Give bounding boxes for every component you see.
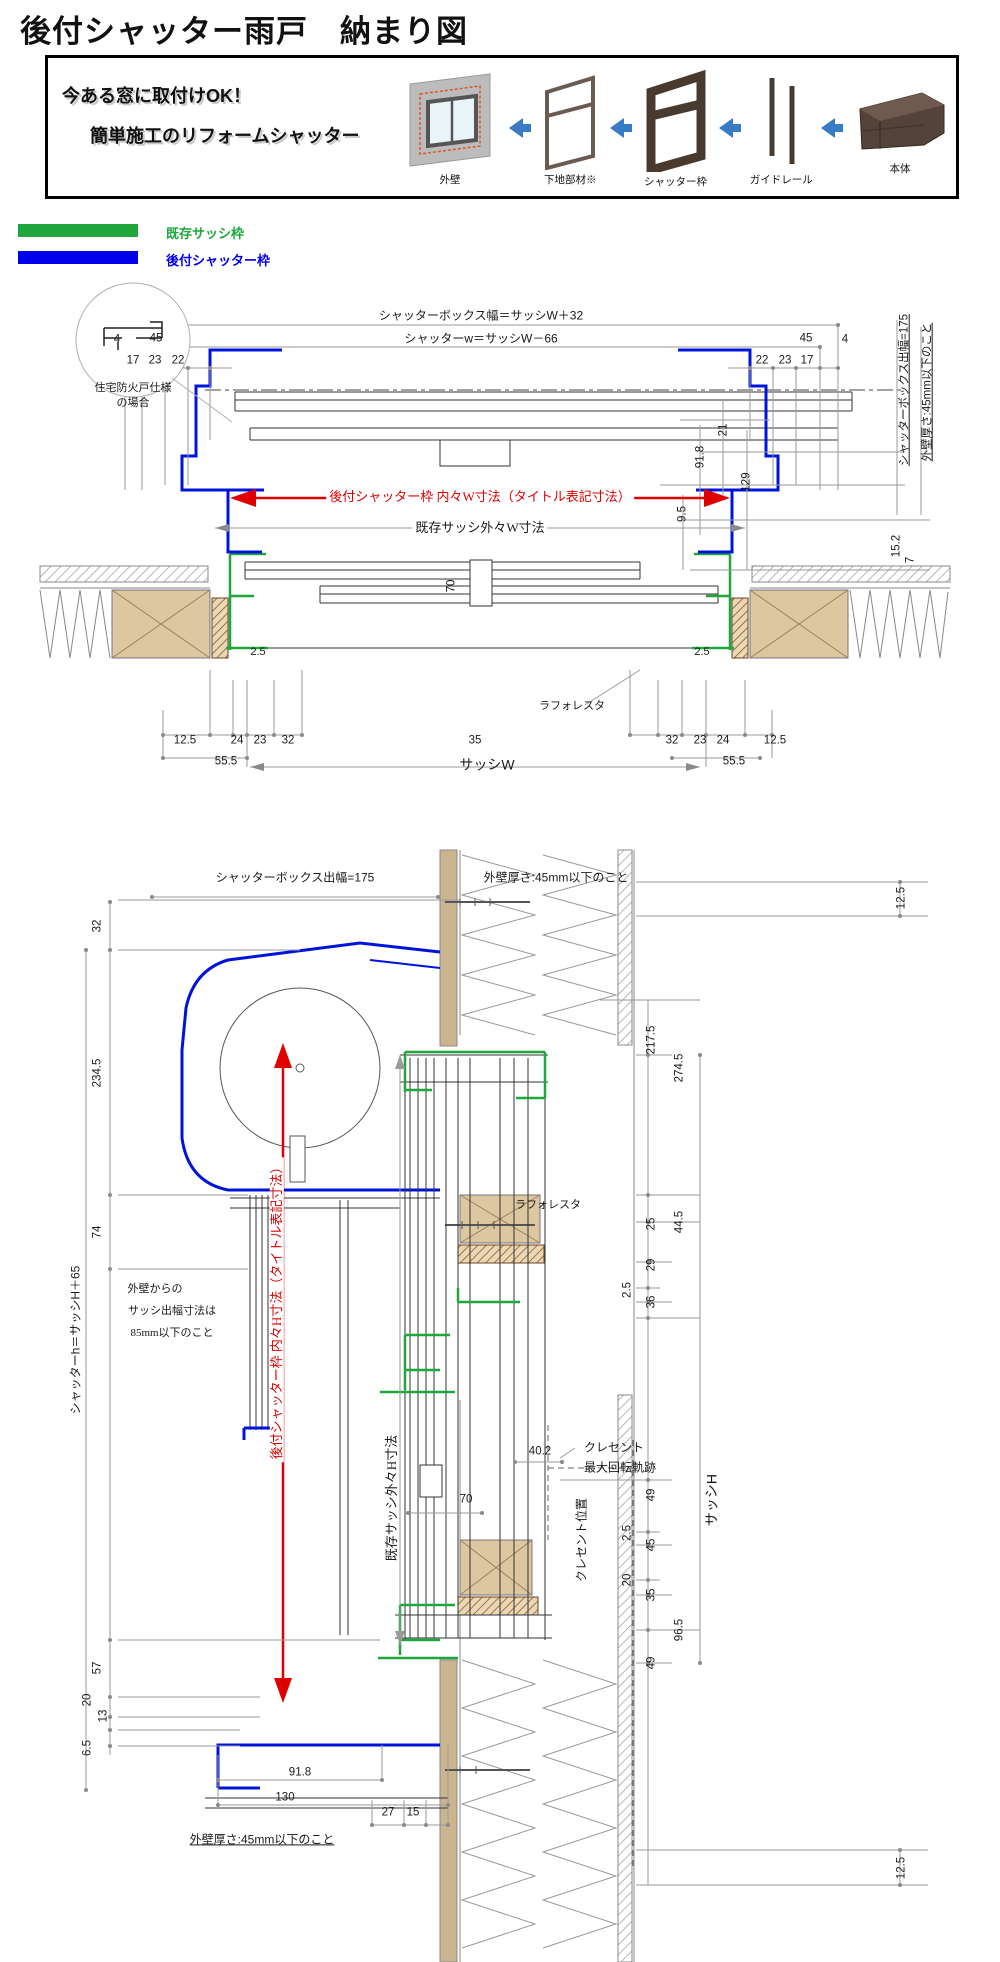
dim-label: 22	[756, 355, 769, 368]
dim-label: 外壁厚さ:45mm以下のこと	[190, 1833, 335, 1846]
dim-label: 45	[800, 333, 813, 346]
shutter-frame-icon	[641, 68, 711, 172]
dim-label: 23	[254, 735, 267, 748]
guide-rail-icon	[758, 70, 804, 170]
dim-label: 49	[646, 1657, 659, 1670]
wall-window-icon	[400, 70, 500, 170]
dim-label: 2.5	[250, 646, 265, 658]
dim-label: 24	[231, 735, 244, 748]
step-base-frame: 下地部材※	[539, 70, 601, 187]
step-label: 下地部材※	[544, 172, 597, 187]
promo-line-1: 今ある窓に取付けOK！	[62, 82, 251, 108]
dim-label: 13	[98, 1710, 111, 1723]
dim-label: 20	[622, 1574, 635, 1587]
arrow-left-icon	[821, 115, 843, 141]
dim-label: 12.5	[764, 735, 786, 748]
dim-label: クレセント位置	[575, 1498, 588, 1582]
dim-label: 4	[842, 334, 848, 347]
dim-label: 49	[646, 1489, 659, 1502]
dim-label: 129	[741, 472, 754, 491]
dim-label: ラフォレスタ	[515, 1199, 581, 1211]
dim-label: 234.5	[92, 1059, 105, 1088]
dim-label: 22	[172, 355, 185, 368]
step-label: 外壁	[440, 172, 461, 187]
step-body: 本体	[852, 81, 948, 176]
dim-label: シャッターボックス出幅=175	[216, 871, 375, 884]
arrow-left-icon	[509, 115, 531, 141]
promo-line-2: 簡単施工のリフォームシャッター	[90, 122, 359, 148]
legend-label-retrofit: 後付シャッター枠	[166, 250, 270, 269]
legend-swatch-existing	[18, 224, 138, 237]
dim-label: 17	[801, 355, 814, 368]
dim-label: 既存サッシ外々H寸法	[385, 1432, 399, 1564]
dim-label: 15.2	[891, 535, 904, 557]
dim-label: ラフォレスタ	[539, 700, 605, 712]
dim-label: 45	[150, 333, 163, 346]
step-label: ガイドレール	[750, 172, 813, 187]
shutter-box-body-icon	[852, 81, 948, 159]
dim-label: 130	[275, 1792, 294, 1805]
dim-label: 40.2	[529, 1446, 551, 1459]
dim-label: 12.5	[896, 1857, 909, 1879]
dim-label: 12.5	[174, 735, 196, 748]
vertical-section-geometry	[0, 840, 1000, 1962]
dim-label: 74	[92, 1226, 105, 1239]
dim-label: クレセント	[584, 1441, 644, 1454]
dim-label: 96.5	[674, 1619, 687, 1641]
dim-label: 4	[114, 334, 120, 347]
dim-label: 20	[82, 1694, 95, 1707]
dim-label: 外壁厚さ:45mm以下のこと	[922, 323, 935, 462]
dim-label: 15	[407, 1807, 420, 1820]
dim-label: の場合	[117, 397, 150, 409]
arrow-left-icon	[610, 115, 632, 141]
dim-label: 23	[149, 355, 162, 368]
dim-label: 7	[905, 557, 918, 563]
dim-label: 217.5	[646, 1026, 659, 1055]
step-shutter-frame: シャッター枠	[641, 68, 711, 189]
installation-steps: 外壁 下地部材※ シャッター枠	[400, 66, 948, 190]
dim-label: サッシ出幅寸法は	[128, 1305, 216, 1317]
promo-box: 今ある窓に取付けOK！ 簡単施工のリフォームシャッター 外壁 下	[45, 55, 959, 199]
dim-label: 35	[469, 735, 482, 748]
step-wall: 外壁	[400, 70, 500, 187]
dim-label: 29	[646, 1259, 659, 1272]
page: { "page": { "title": "後付シャッター雨戸 納まり図" },…	[0, 0, 1000, 1962]
dim-label: シャッターw＝サッシW－66	[404, 332, 557, 345]
dim-label: 32	[282, 735, 295, 748]
legend-label-existing: 既存サッシ枠	[166, 223, 244, 242]
dim-label: 6.5	[82, 1740, 95, 1756]
dim-label: 外壁厚さ:45mm以下のこと	[484, 871, 629, 884]
dim-label: 55.5	[215, 756, 237, 769]
dim-label: 85mm以下のこと	[130, 1327, 213, 1339]
dim-label: 27	[382, 1807, 395, 1820]
dim-label: 91.8	[695, 446, 708, 468]
dim-label: 9.5	[677, 506, 690, 522]
dim-label: 70	[460, 1494, 473, 1507]
dim-label: 2.5	[622, 1282, 635, 1298]
dim-label: 24	[717, 735, 730, 748]
step-guide-rail: ガイドレール	[750, 70, 813, 187]
dim-label: サッシW	[459, 757, 514, 772]
dim-label: 2.5	[622, 1525, 635, 1541]
dim-label: 外壁からの	[128, 1283, 183, 1295]
dim-label: 後付シャッター枠 内々W寸法（タイトル表記寸法）	[326, 490, 634, 504]
dim-label: 57	[92, 1662, 105, 1675]
dim-label: 17	[127, 355, 140, 368]
page-title: 後付シャッター雨戸 納まり図	[20, 6, 468, 51]
dim-label: 21	[718, 424, 731, 437]
dim-label: 70	[446, 580, 459, 593]
vertical-section-drawing: シャッターボックス出幅=175外壁厚さ:45mm以下のこと12.532234.5…	[0, 840, 1000, 1962]
dim-label: 32	[666, 735, 679, 748]
dim-label: 36	[646, 1296, 659, 1309]
step-label: 本体	[890, 161, 911, 176]
dim-label: シャッターh＝サッシH＋65	[69, 1266, 82, 1415]
dim-label: 23	[779, 355, 792, 368]
dim-label: 91.8	[289, 1767, 311, 1780]
step-label: シャッター枠	[644, 174, 707, 189]
dim-label: 274.5	[674, 1054, 687, 1083]
dim-label: 44.5	[674, 1211, 687, 1233]
dim-label: 23	[694, 735, 707, 748]
dim-label: 最大回転軌跡	[584, 1461, 656, 1474]
dim-label: 32	[92, 920, 105, 933]
legend-swatch-retrofit	[18, 251, 138, 264]
dim-label: 2.5	[694, 646, 709, 658]
dim-label: 45	[646, 1539, 659, 1552]
dim-label: 35	[646, 1589, 659, 1602]
dim-label: サッシH	[704, 1474, 719, 1526]
dim-label: 55.5	[723, 756, 745, 769]
dim-label: シャッターボックス幅＝サッシW＋32	[379, 309, 583, 322]
plan-section-drawing: シャッターボックス幅＝サッシW＋32シャッターw＝サッシW－6644545417…	[0, 280, 1000, 790]
dim-label: 後付シャッター枠 内々H寸法（タイトル表記寸法）	[270, 1158, 284, 1463]
base-frame-icon	[539, 70, 601, 170]
arrow-left-icon	[719, 115, 741, 141]
dim-label: 25	[646, 1218, 659, 1231]
dim-label: 既存サッシ外々W寸法	[412, 521, 547, 535]
dim-label: 12.5	[896, 887, 909, 909]
dim-label: 住宅防火戸仕様	[95, 382, 172, 394]
dim-label: シャッターボックス出幅=175	[899, 314, 912, 466]
